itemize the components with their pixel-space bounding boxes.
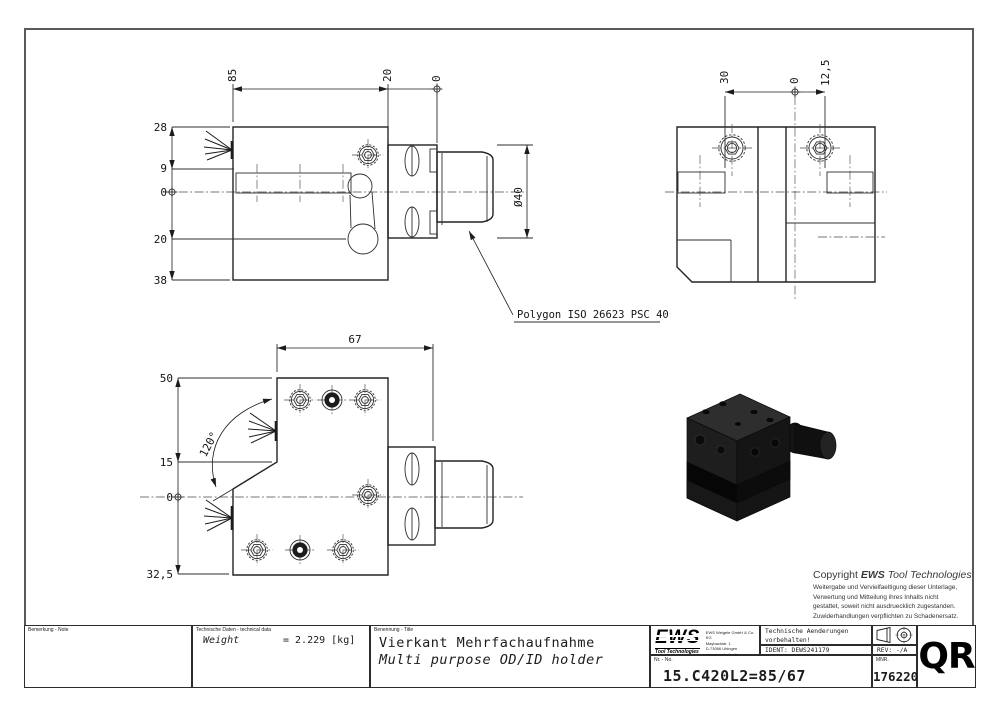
note-label: Bemerkung - Note: [25, 626, 191, 633]
note-cell: Bemerkung - Note: [24, 625, 192, 688]
bottom-screw: [284, 384, 316, 416]
front-top-dimensions: 85 20 0: [226, 69, 443, 143]
revision-cell: REV: -/A: [872, 645, 917, 655]
bottom-view: 120° 67 50 15 0 32,5: [140, 333, 523, 581]
company-address: EWS Weigele GmbH & Co. KG Maybachstr. 1 …: [706, 630, 757, 657]
front-clamp-screw: [352, 139, 384, 171]
qr-cell: QR: [917, 625, 976, 688]
dim-label: 32,5: [147, 568, 174, 581]
dim-label: 12,5: [819, 60, 832, 87]
dim-label: 20: [381, 69, 394, 82]
part-title-de: Vierkant Mehrfachaufnahme: [371, 633, 649, 651]
copyright-brand-suffix: Tool Technologies: [885, 569, 972, 581]
qr-mark: QR: [918, 626, 975, 687]
front-left-dimensions: 28 9 0 20 38: [154, 121, 346, 287]
dim-label: 85: [226, 69, 239, 82]
dim-label-diameter: Ø40: [512, 187, 525, 207]
technical-data-label: Technische Daten - technical data: [193, 626, 369, 633]
front-view: 85 20 0 28 9 0 20 38: [154, 69, 669, 322]
title-cell: Benennung - Title Vierkant Mehrfachaufna…: [370, 625, 650, 688]
mnr-label: MNR.: [873, 656, 916, 663]
bottom-pin: [317, 385, 347, 415]
copyright-line: Verwertung und Mitteilung ihres Inhalts …: [813, 593, 983, 603]
serration-symbol-front: [204, 131, 232, 160]
modifications-cell: Technische Aenderungen vorbehalten! Subj…: [760, 625, 872, 645]
side-view: 30 0 12,5: [665, 60, 887, 301]
side-screw-right: [800, 124, 840, 176]
part-number-cell: Nr. - No. 15.C420L2=85/67: [650, 655, 872, 688]
dim-label: 0: [788, 77, 801, 84]
copyright-line: Zuwiderhandlungen verpflichten zu Schade…: [813, 612, 983, 622]
mnr-value: 176220: [873, 663, 916, 684]
projection-symbol-cell: [872, 625, 917, 645]
side-screw-left: [712, 124, 752, 176]
bottom-center-screw: [352, 479, 384, 511]
front-shank-outline: [437, 152, 493, 222]
dim-label: 50: [160, 372, 173, 385]
side-slot-left: [678, 172, 725, 193]
ident-value: IDENT: DEWS241179: [761, 646, 871, 654]
serration-symbol-lower: [204, 500, 232, 531]
dim-label: 67: [348, 333, 361, 346]
weight-row: Weight = 2.229 [kg]: [193, 633, 369, 646]
first-angle-projection-icon: [873, 626, 917, 644]
bottom-pin: [285, 535, 315, 565]
copyright-block: Copyright EWS Tool Technologies Weiterga…: [813, 569, 983, 621]
bottom-top-dimension: 67: [277, 333, 433, 441]
revision-value: REV: -/A: [873, 646, 916, 654]
copyright-headline: Copyright EWS Tool Technologies: [813, 569, 983, 581]
technical-data-cell: Technische Daten - technical data Weight…: [192, 625, 370, 688]
ident-cell: IDENT: DEWS241179: [760, 645, 872, 655]
dim-label: 30: [718, 71, 731, 84]
dim-label: 28: [154, 121, 167, 134]
copyright-line: gestattet, soweit nicht ausdruecklich zu…: [813, 602, 983, 612]
dim-label: 0: [430, 75, 443, 82]
bottom-screw: [241, 534, 273, 566]
dim-label: 9: [160, 162, 167, 175]
serration-symbol-upper: [248, 413, 276, 443]
bottom-screw: [349, 384, 381, 416]
front-tool-slot: [236, 173, 351, 193]
angle-dimension: 120°: [197, 399, 272, 487]
address-line: EWS Weigele GmbH & Co. KG: [706, 630, 757, 641]
front-diameter-dimension: Ø40: [497, 145, 533, 238]
bottom-flange-outline: [388, 447, 435, 545]
iso-render: [687, 394, 836, 521]
drawing-sheet: 85 20 0 28 9 0 20 38: [0, 0, 1000, 715]
ews-logo-text: EWS: [655, 627, 700, 648]
bottom-screw: [327, 534, 359, 566]
dim-label: 0: [166, 491, 173, 504]
bottom-shank-outline: [435, 461, 493, 528]
weight-value: = 2.229 [kg]: [283, 635, 355, 646]
ews-logo-subtitle: Tool Technologies: [655, 648, 700, 655]
modification-note-de: Technische Aenderungen vorbehalten!: [765, 628, 871, 645]
polygon-callout: Polygon ISO 26623 PSC 40: [469, 231, 669, 322]
dim-label: 38: [154, 274, 167, 287]
dim-label: 20: [154, 233, 167, 246]
weight-label: Weight: [203, 635, 283, 646]
part-number-label: Nr. - No.: [651, 656, 871, 663]
dim-label: 15: [160, 456, 173, 469]
mnr-cell: MNR. 176220: [872, 655, 917, 688]
polygon-callout-label: Polygon ISO 26623 PSC 40: [517, 309, 669, 321]
copyright-prefix: Copyright: [813, 569, 861, 581]
copyright-brand: EWS: [861, 569, 885, 581]
logo-cell: EWS Tool Technologies EWS Weigele GmbH &…: [650, 625, 760, 655]
title-label: Benennung - Title: [371, 626, 649, 633]
part-title-en: Multi purpose OD/ID holder: [371, 651, 649, 668]
side-body-outline: [677, 127, 875, 282]
part-number-value: 15.C420L2=85/67: [651, 663, 871, 685]
copyright-notice: Weitergabe und Vervielfaeltigung dieser …: [813, 583, 983, 621]
dim-label: 0: [160, 186, 167, 199]
copyright-line: Weitergabe und Vervielfaeltigung dieser …: [813, 583, 983, 593]
title-block: Bemerkung - Note Technische Daten - tech…: [24, 625, 976, 688]
ews-logo: EWS: [655, 629, 700, 646]
dim-label-angle: 120°: [197, 430, 221, 460]
